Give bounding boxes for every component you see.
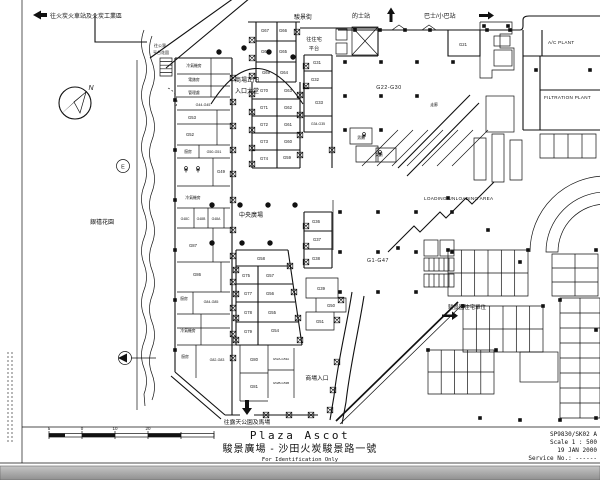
- grid-bubble-e: E: [117, 160, 130, 173]
- identification-note: For Identification Only: [262, 457, 339, 463]
- unit-label-G22-G30: G22-G30: [376, 85, 402, 91]
- room-label: 廚房: [184, 149, 192, 154]
- unit-label-G63: G63: [284, 88, 293, 93]
- unit-label-G50-G51: G50-G51: [207, 150, 222, 154]
- street-name-label: 駿景街: [294, 13, 312, 21]
- residential-podium-label-1: 往住宅: [306, 35, 322, 43]
- annotations: 往火炭火車站及火炭工業區 駿景街 的士站 巴士/小巴站 往公眾 平台花園 往住宅…: [50, 12, 591, 426]
- unit-label-G60: G60: [284, 139, 293, 144]
- room-label: 冷氣機房: [185, 195, 200, 200]
- title-english: Plaza Ascot: [250, 429, 350, 442]
- stream-line: [142, 30, 147, 406]
- unit-label-G64: G64: [280, 70, 289, 75]
- unit-label-G52: G52: [186, 132, 195, 137]
- title-chinese: 駿景廣場 - 沙田火炭駿景路一號: [223, 442, 378, 455]
- unit-label-G66: G66: [279, 28, 288, 33]
- unit-label-G68: G68: [261, 49, 270, 54]
- room-label: 走廊: [430, 102, 438, 107]
- plan-linework: [95, 0, 600, 424]
- floor-plan-drawing: N E G67G66G68G65G69G64G70G63G71G62G72G61…: [0, 0, 600, 480]
- hatched-area: [520, 352, 558, 382]
- jubilee-garden-label: 銀禧花園: [90, 218, 114, 226]
- unit-label-G37: G37: [313, 237, 322, 242]
- main-entrance-label-1: 商場正門: [235, 76, 259, 84]
- unit-label-G73: G73: [260, 139, 269, 144]
- taxi-stand-label: 的士站: [352, 12, 370, 20]
- to-park-label: 往露天公園及馬場: [224, 418, 271, 426]
- scale-tick-label: 10: [112, 426, 118, 431]
- plan-canvas: N E G67G66G68G65G69G64G70G63G71G62G72G61…: [0, 0, 600, 480]
- unit-label-G51: G51: [316, 319, 325, 324]
- unit-label-G44-G45: G44-G45: [196, 103, 211, 107]
- room-label: 男廁: [357, 135, 365, 140]
- unit-label-G77: G77: [244, 291, 253, 296]
- room-label: 管理處: [188, 90, 200, 95]
- unit-label-G80: G80: [250, 357, 259, 362]
- room-label: 廚房: [181, 354, 189, 359]
- unit-label-G53: G53: [188, 115, 197, 120]
- unit-label-G31: G31: [313, 60, 322, 65]
- room-label: 電錶房: [188, 77, 200, 82]
- unit-label-G79: G79: [244, 329, 253, 334]
- unit-label-G55: G55: [268, 310, 277, 315]
- unit-label-G52B-G53B: G52B-G53B: [273, 381, 289, 385]
- residential-units-label: 駿景園住宅單位: [448, 303, 486, 311]
- unit-label-G62: G62: [284, 105, 293, 110]
- service-number: Service No.: ------: [528, 455, 597, 462]
- unit-label-G57: G57: [266, 273, 275, 278]
- room-label: 廚房: [180, 296, 188, 301]
- scale-tick-label: 20: [145, 426, 151, 431]
- unit-label-G61: G61: [284, 122, 293, 127]
- unit-label-G65: G65: [279, 49, 288, 54]
- down-arrow-icon: [242, 400, 252, 415]
- unit-label-G56: G56: [266, 291, 275, 296]
- window-bottom-bar: [0, 466, 600, 480]
- right-arrow-icon: [479, 12, 494, 20]
- unit-label-G49: G49: [217, 169, 226, 174]
- drawing-scale: Scale 1 : 500: [550, 439, 597, 446]
- loading-area-label: LOADING/UNLOADING AREA: [424, 196, 494, 201]
- unit-label-G52A-G53A: G52A-G53A: [273, 357, 289, 361]
- unit-label-G50: G50: [327, 303, 336, 308]
- room-labels: 冷氣機房電錶房管理處廚房冷氣機房廚房冷氣機房廚房男廁女廁走廊: [180, 63, 438, 359]
- parking-grids: [160, 58, 600, 418]
- central-plaza-label: 中央廣場: [239, 211, 263, 219]
- left-arrow-icon: [33, 11, 47, 20]
- unit-label-G81: G81: [250, 384, 259, 389]
- up-arrow-icon: [387, 8, 395, 23]
- scale-bar: 501020: [48, 426, 214, 439]
- unit-label-G78: G78: [244, 310, 253, 315]
- grid-ref-letter: E: [121, 165, 125, 171]
- unit-label-G48C: G48C: [181, 217, 190, 221]
- unit-label-G54: G54: [271, 328, 280, 333]
- public-podium-label-1: 往公眾: [154, 42, 166, 48]
- stream-line: [150, 36, 155, 400]
- unit-label-G82-G83: G82-G83: [210, 358, 225, 362]
- unit-label-G32: G32: [311, 77, 320, 82]
- direction-arrows: [33, 8, 494, 416]
- unit-label-G58: G58: [257, 256, 266, 261]
- unit-label-G21: G21: [459, 42, 468, 47]
- room-label: 女廁: [375, 152, 383, 157]
- unit-label-G74: G74: [260, 156, 269, 161]
- title-block: Plaza Ascot 駿景廣場 - 沙田火炭駿景路一號 For Identif…: [48, 426, 598, 463]
- drawing-number: SP9830/SK02 A: [550, 431, 597, 438]
- unit-label-G87: G87: [189, 243, 198, 248]
- residents-arrow-icon: [442, 312, 458, 321]
- unit-label-G33: G33: [315, 100, 324, 105]
- unit-label-G59: G59: [283, 155, 292, 160]
- main-entrance-label-2: 入口大堂: [235, 87, 259, 95]
- page-frame: [0, 0, 600, 480]
- unit-label-G36: G36: [312, 219, 321, 224]
- public-podium-label-2: 平台花園: [153, 49, 169, 55]
- unit-label-G39: G39: [317, 286, 326, 291]
- unit-label-G69: G69: [262, 70, 271, 75]
- unit-label-G72: G72: [260, 122, 269, 127]
- margin-plot-info: [8, 352, 12, 442]
- unit-label-G86: G86: [193, 272, 202, 277]
- to-station-label: 往火炭火車站及火炭工業區: [50, 12, 122, 20]
- room-label: 冷氣機房: [180, 328, 195, 333]
- unit-label-G48B: G48B: [197, 217, 206, 221]
- unit-label-G1-G47: G1-G47: [367, 258, 389, 264]
- unit-label-G38: G38: [312, 256, 321, 261]
- unit-label-G84-G85: G84-G85: [204, 300, 219, 304]
- north-compass-icon: N: [59, 85, 94, 119]
- residential-podium-label-2: 平台: [309, 44, 319, 52]
- unit-label-G75: G75: [242, 273, 251, 278]
- unit-label-G70: G70: [260, 88, 269, 93]
- unit-label-G67: G67: [261, 28, 270, 33]
- filtration-plant-label: FILTRATION PLANT: [544, 95, 591, 100]
- north-label: N: [88, 85, 94, 92]
- room-label: 冷氣機房: [186, 63, 201, 68]
- unit-label-G48A: G48A: [212, 217, 221, 221]
- bus-stop-label: 巴士/小巴站: [424, 12, 456, 20]
- mall-entrance-label: 商場入口: [305, 374, 328, 382]
- unit-label-G34-G35: G34-G35: [311, 122, 325, 126]
- drawing-date: 19 JAN 2000: [557, 447, 597, 454]
- unit-label-G71: G71: [260, 105, 269, 110]
- ac-plant-label: A/C PLANT: [548, 40, 574, 45]
